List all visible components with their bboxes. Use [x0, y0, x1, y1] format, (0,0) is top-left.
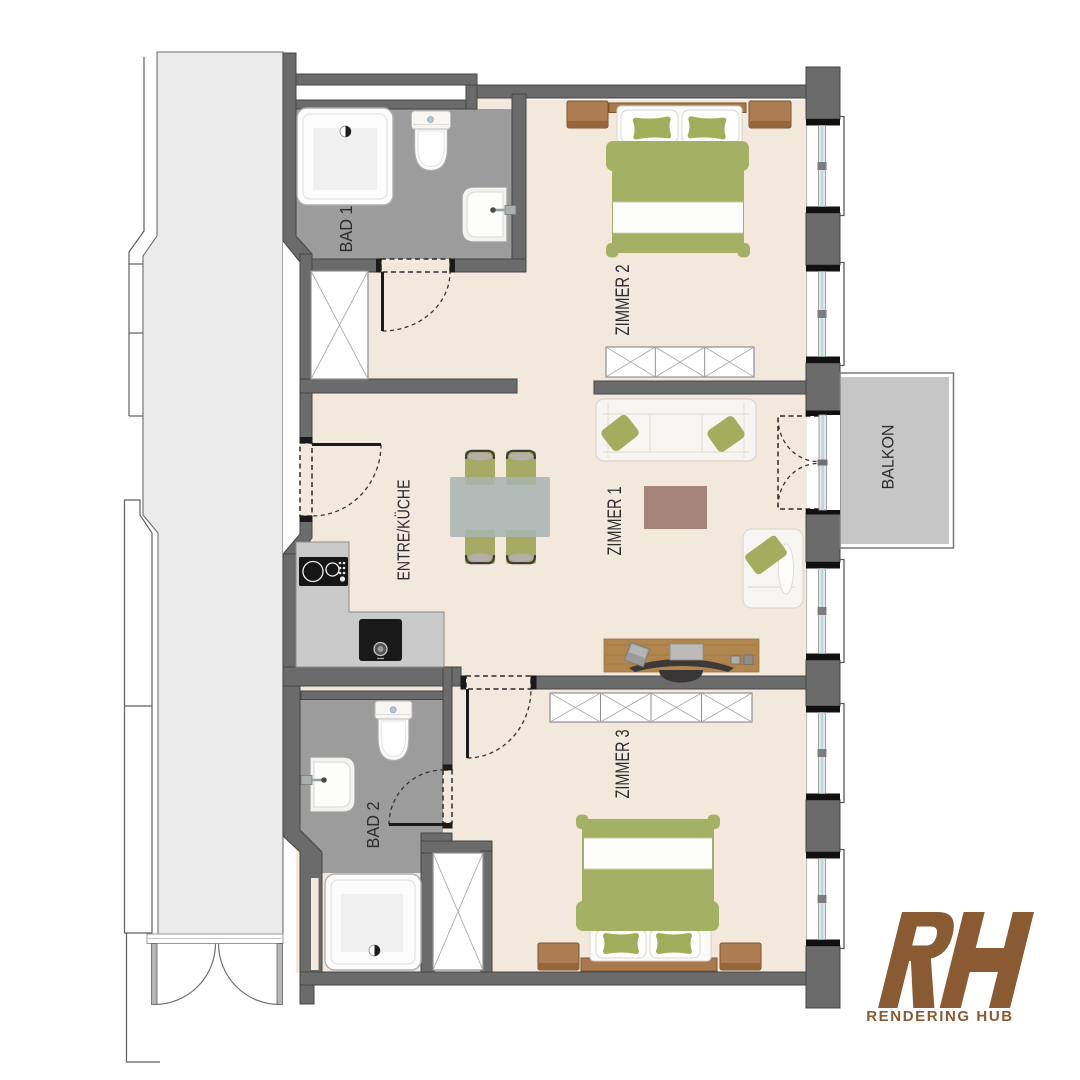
svg-text:ENTRE/KÜCHE: ENTRE/KÜCHE: [394, 480, 414, 581]
svg-text:ZIMMER 1: ZIMMER 1: [605, 487, 626, 556]
svg-text:ZIMMER 2: ZIMMER 2: [613, 265, 634, 336]
svg-text:BALKON: BALKON: [879, 425, 898, 490]
svg-text:ZIMMER 3: ZIMMER 3: [613, 730, 634, 799]
svg-text:BAD 2: BAD 2: [363, 802, 383, 849]
svg-text:BAD 1: BAD 1: [336, 206, 356, 253]
svg-text:RENDERING HUB: RENDERING HUB: [866, 1008, 1013, 1025]
